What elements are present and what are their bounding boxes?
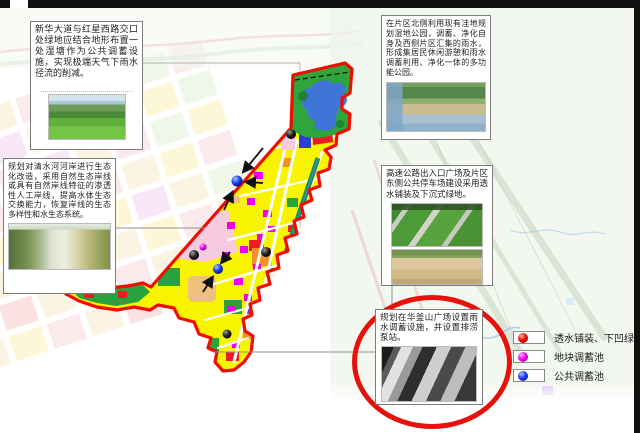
- photo-park-lawn: [48, 94, 126, 140]
- callout-pump-station: 规划在华釜山广场设置雨水调蓄设施，并设置排涝泵站。: [375, 309, 483, 405]
- callout-riverbank-text: 规划对清水河河岸进行生态化改造，采用自然生态岸线或具有自然岸线特征的渗透性人工岸…: [8, 162, 111, 220]
- legend-swatch: [513, 369, 545, 382]
- top-black-bar: [0, 0, 640, 8]
- callout-parking: 高速公路出入口广场及片区东侧公共停车场建设采用透水铺装及下沉式绿地。: [381, 165, 493, 286]
- magenta-dot-icon: [518, 352, 528, 362]
- dot-public-storage: [232, 176, 243, 187]
- callout-parking-text: 高速公路出入口广场及片区东侧公共停车场建设采用透水铺装及下沉式绿地。: [386, 169, 488, 200]
- red-dot-icon: [518, 333, 528, 343]
- callout-wetland: 在片区北侧利用现有洼地规划湿地公园，调蓄、净化自身及西侧片区汇集的雨水，形成集居…: [381, 15, 491, 140]
- site-sketch: [41, 82, 132, 92]
- right-black-bar: [634, 0, 640, 433]
- blue-dot-icon: [518, 371, 528, 381]
- legend-swatch: [513, 350, 545, 363]
- legend-swatch: [513, 331, 545, 344]
- legend-label: 公共调蓄池: [554, 368, 604, 383]
- photo-pump-station: [381, 346, 477, 402]
- callout-northwest: 新华大道与红星西路交口处绿地应结合地形布置一处湿塘作为公共调蓄设施，实现极端天气…: [30, 21, 143, 150]
- legend-item-plot-tank: 地块调蓄池: [513, 350, 640, 363]
- dot-plot-storage: [200, 244, 207, 251]
- legend: 透水铺装、下凹绿地 地块调蓄池 公共调蓄池: [513, 331, 640, 388]
- legend-item-public-tank: 公共调蓄池: [513, 369, 640, 382]
- photo-lawn-paths: [391, 203, 483, 247]
- photo-permeable-pavement: [391, 249, 483, 285]
- legend-item-permeable: 透水铺装、下凹绿地: [513, 331, 640, 344]
- photo-river-bank: [8, 223, 111, 270]
- legend-label: 地块调蓄池: [554, 349, 604, 364]
- callout-riverbank: 规划对清水河河岸进行生态化改造，采用自然生态岸线或具有自然岸线特征的渗透性人工岸…: [3, 158, 116, 294]
- planning-figure: 新华大道与红星西路交口处绿地应结合地形布置一处湿塘作为公共调蓄设施，实现极端天气…: [0, 0, 640, 433]
- photo-wetland-park: [386, 82, 486, 132]
- callout-northwest-text: 新华大道与红星西路交口处绿地应结合地形布置一处湿塘作为公共调蓄设施，实现极端天气…: [35, 25, 138, 80]
- dot-black: [286, 129, 296, 139]
- callout-wetland-text: 在片区北侧利用现有洼地规划湿地公园，调蓄、净化自身及西侧片区汇集的雨水，形成集居…: [386, 19, 486, 78]
- legend-label: 透水铺装、下凹绿地: [554, 330, 640, 345]
- callout-pump-station-text: 规划在华釜山广场设置雨水调蓄设施，并设置排涝泵站。: [380, 313, 478, 344]
- top-bar-notch: [10, 0, 28, 8]
